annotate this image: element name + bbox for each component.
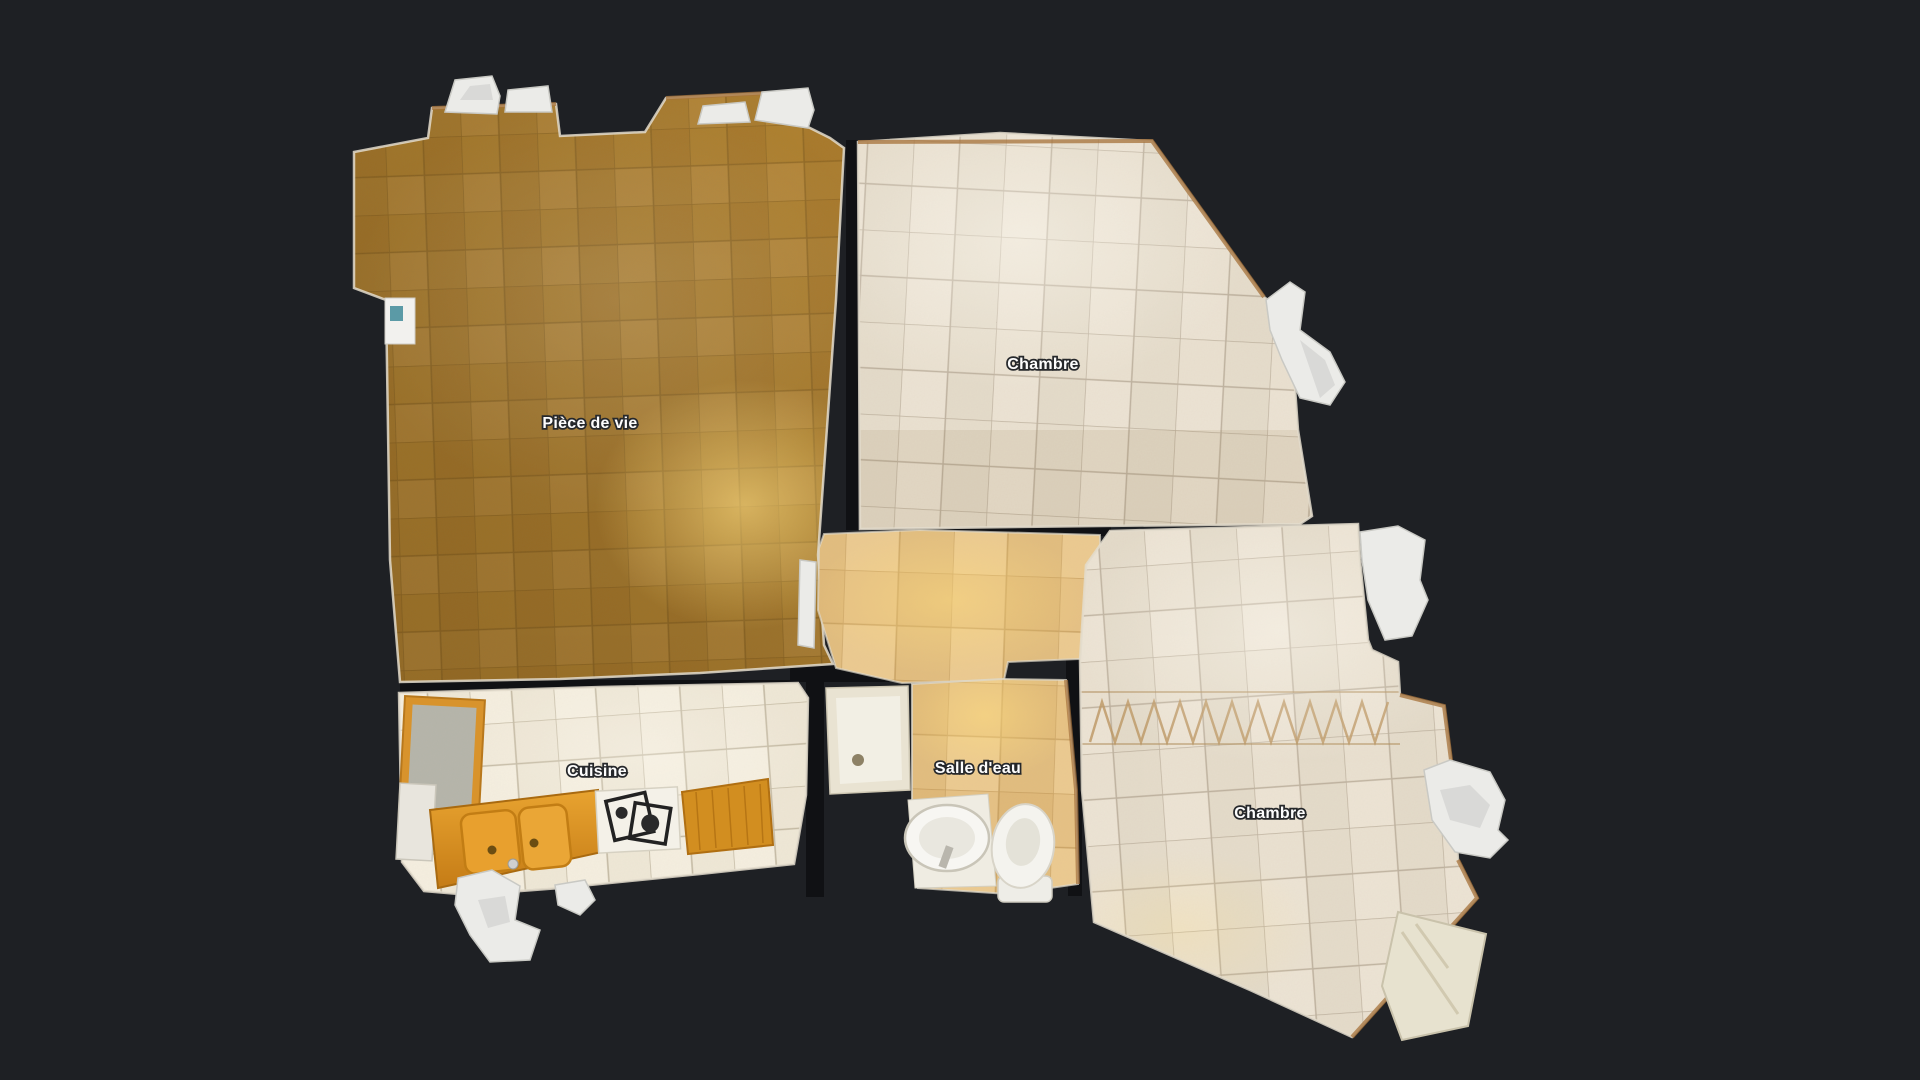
shower-tray xyxy=(826,686,910,794)
room-label-piece-de-vie: Pièce de vie xyxy=(542,415,637,432)
room-label-chambre-nord: Chambre xyxy=(1007,356,1078,373)
room-label-salle-d-eau: Salle d'eau xyxy=(935,760,1021,777)
floorplan-svg: Pièce de vie Chambre Cuisine Salle d'eau… xyxy=(0,0,1920,1080)
kitchen-cabinet xyxy=(396,783,436,861)
washbasin xyxy=(905,794,996,888)
kitchen-worktop xyxy=(682,779,773,854)
room-label-chambre-sud: Chambre xyxy=(1234,805,1305,822)
window-sill xyxy=(385,298,415,344)
kitchen-hob xyxy=(595,787,680,853)
room-label-cuisine: Cuisine xyxy=(567,763,627,780)
floorplan-canvas: Pièce de vie Chambre Cuisine Salle d'eau… xyxy=(0,0,1920,1080)
